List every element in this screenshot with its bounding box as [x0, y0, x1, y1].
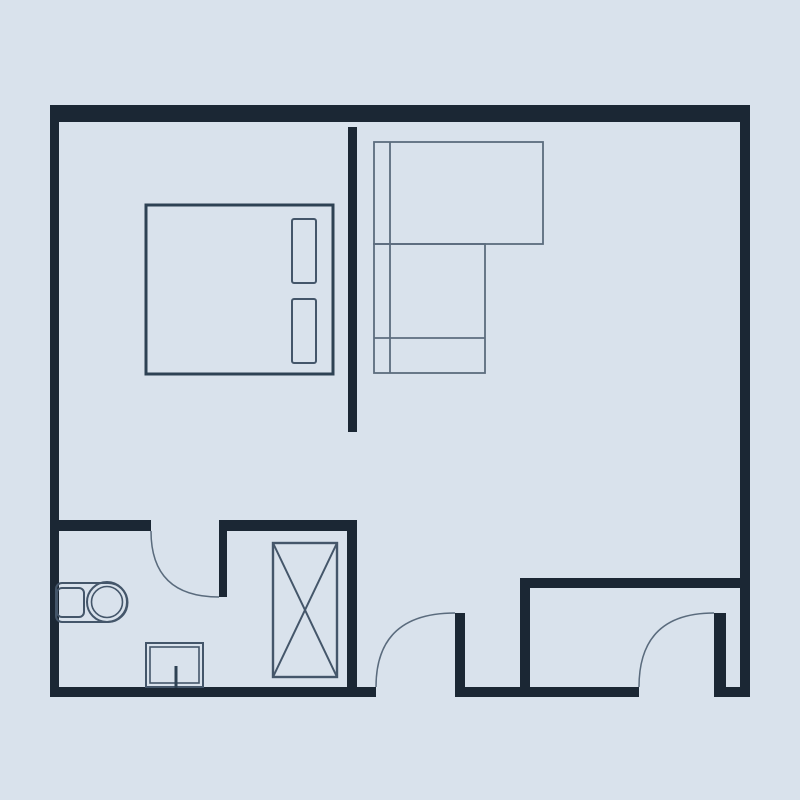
bathroom-door-leaf: [219, 531, 227, 597]
bathroom-closet-wall: [219, 520, 357, 531]
entry-door-arc: [376, 613, 455, 687]
double-bed-frame: [146, 205, 333, 374]
toilet-bowl-outer: [87, 582, 127, 622]
walls-layer: [50, 105, 750, 697]
floor-plan-canvas: [0, 0, 800, 800]
bathroom-wall-left-segment: [59, 520, 151, 531]
bed-pillow-bottom: [292, 299, 316, 363]
floor-plan: [0, 0, 800, 800]
entry-door-leaf: [455, 613, 465, 697]
door-arcs-layer: [151, 531, 714, 687]
sofa-back-section: [374, 142, 543, 244]
bathroom-door-arc: [151, 531, 219, 597]
outer-wall-bottom-middle: [465, 687, 639, 697]
furniture-layer: [56, 142, 543, 688]
closet-right-wall: [347, 520, 357, 687]
toilet-bowl-inner: [92, 587, 123, 618]
outer-wall-top: [50, 105, 750, 122]
outer-wall-right: [740, 105, 750, 697]
bottomright-room-left-wall: [520, 578, 530, 687]
secondary-door-arc: [639, 613, 714, 687]
partition-bedroom-living: [348, 127, 357, 432]
outer-wall-bottom-left: [50, 687, 376, 697]
secondary-door-leaf: [714, 613, 726, 697]
bed-pillow-top: [292, 219, 316, 283]
toilet-tank: [57, 588, 84, 617]
bottomright-room-top-wall: [520, 578, 740, 588]
